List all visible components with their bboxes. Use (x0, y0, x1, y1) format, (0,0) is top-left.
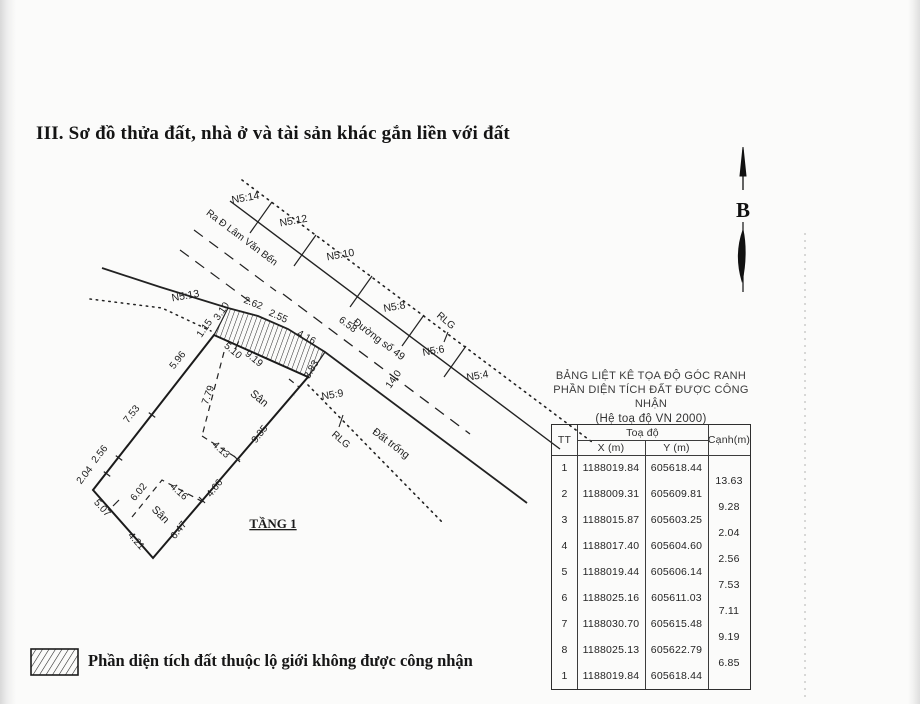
table-row-0-x: 1188019.84 (577, 455, 645, 481)
table-row-3-y: 605604.60 (645, 533, 708, 559)
table-row-2-x: 1188015.87 (577, 507, 645, 533)
dim-label: 2.56 (90, 443, 111, 465)
table-row-2-y: 605603.25 (645, 507, 708, 533)
table-row-0-y: 605618.44 (645, 455, 708, 481)
coordinate-table-titles: BẢNG LIỆT KÊ TỌA ĐỘ GÓC RANH PHẦN DIỆN T… (538, 369, 764, 426)
table-row-6-x: 1188030.70 (577, 611, 645, 637)
canh-value-5: 7.11 (708, 603, 750, 619)
table-row-0-tt: 1 (552, 455, 577, 481)
canh-value-2: 2.04 (708, 525, 750, 541)
col-header-y: Y (m) (645, 440, 708, 455)
dim-label: 6.02 (129, 481, 150, 503)
col-header-canh: Cạnh(m) (708, 425, 750, 455)
n5-13-dotted-line (90, 299, 211, 331)
road-label-duong-so-49: Đường số 49 (351, 316, 408, 363)
canh-value-0: 13.63 (708, 473, 750, 489)
vacant-land-label: Đất trống (370, 426, 412, 462)
compass-arrowhead (740, 147, 746, 176)
table-row-5-y: 605611.03 (645, 585, 708, 611)
lot-label-n5-10: N5:10 (326, 247, 356, 264)
site-plan-diagram: B N5:14N5:12N5:10N5:8N5:6N5:4N5:13N5:9Ra… (0, 0, 920, 704)
rlg-label-far: RLG (434, 310, 457, 332)
table-row-4-y: 605606.14 (645, 559, 708, 585)
rlg-label-near: RLG (329, 429, 352, 451)
table-row-1-y: 605609.81 (645, 481, 708, 507)
table-row-3-tt: 4 (552, 533, 577, 559)
dim-label: 4.16 (168, 482, 190, 503)
dim-label: 6.47 (169, 519, 190, 541)
dim-label: 4.13 (210, 440, 232, 461)
legend (30, 648, 80, 683)
canh-value-4: 7.53 (708, 577, 750, 593)
lot-label-n5-4: N5:4 (466, 368, 490, 384)
yard-label: Sân (149, 504, 171, 526)
diagram-labels: N5:14N5:12N5:10N5:8N5:6N5:4N5:13N5:9Ra Đ… (75, 190, 490, 553)
lot-label-n5-14: N5:14 (231, 190, 261, 207)
north-compass: B (736, 147, 750, 292)
dim-label: 2.04 (75, 464, 96, 486)
lot-label-n5-8: N5:8 (383, 299, 407, 315)
canh-value-3: 2.56 (708, 551, 750, 567)
col-header-tt: TT (552, 425, 577, 455)
dim-label: 14,0 (384, 368, 404, 391)
table-row-8-y: 605618.44 (645, 663, 708, 689)
table-row-7-y: 605622.79 (645, 637, 708, 663)
lot-label-n5-9: N5:9 (321, 387, 345, 403)
table-row-4-tt: 5 (552, 559, 577, 585)
dim-label: 7.79 (200, 384, 217, 406)
col-header-toado: Toạ độ (577, 425, 708, 440)
legend-label: Phần diện tích đất thuộc lộ giới không đ… (88, 651, 608, 671)
lot-label-n5-6: N5:6 (422, 343, 446, 359)
canh-value-6: 9.19 (708, 629, 750, 645)
dim-label: 4.66 (205, 477, 226, 499)
table-row-1-x: 1188009.31 (577, 481, 645, 507)
table-row-4-x: 1188019.44 (577, 559, 645, 585)
canh-value-1: 9.28 (708, 499, 750, 515)
dim-label: 5.96 (168, 349, 189, 371)
table-row-3-x: 1188017.40 (577, 533, 645, 559)
legend-hatch-swatch (30, 648, 80, 678)
road-label-lam-van-ben: Ra Đ Lâm Văn Bến (204, 207, 280, 268)
dim-label: 7.53 (122, 403, 143, 425)
table-row-6-y: 605615.48 (645, 611, 708, 637)
canh-value-7: 6.85 (708, 655, 750, 671)
floor-label: TẦNG 1 (249, 516, 296, 531)
compass-tail-blade (738, 230, 745, 281)
dim-label: 9.35 (250, 423, 271, 445)
table-row-5-tt: 6 (552, 585, 577, 611)
table-row-2-tt: 3 (552, 507, 577, 533)
dim-label: 5.07 (91, 497, 112, 519)
table-title-line2: PHẦN DIỆN TÍCH ĐẤT ĐƯỢC CÔNG NHẬN (538, 383, 764, 411)
scanned-land-certificate-page: III. Sơ đồ thửa đất, nhà ở và tài sản kh… (0, 0, 920, 704)
near-rlg-dotted-line (308, 385, 442, 522)
lot-label-n5-13: N5:13 (171, 288, 201, 305)
near-road-edge-line (102, 268, 527, 503)
table-row-5-x: 1188025.16 (577, 585, 645, 611)
col-header-x: X (m) (577, 440, 645, 455)
yard-label: Sân (248, 388, 271, 410)
table-row-1-tt: 2 (552, 481, 577, 507)
table-title-line1: BẢNG LIỆT KÊ TỌA ĐỘ GÓC RANH (538, 369, 764, 383)
dim-label: 4.21 (125, 530, 146, 552)
compass-north-letter: B (736, 198, 750, 222)
dim-label: 2.62 (242, 295, 265, 313)
rlg-far-tick (444, 332, 448, 342)
table-row-6-tt: 7 (552, 611, 577, 637)
